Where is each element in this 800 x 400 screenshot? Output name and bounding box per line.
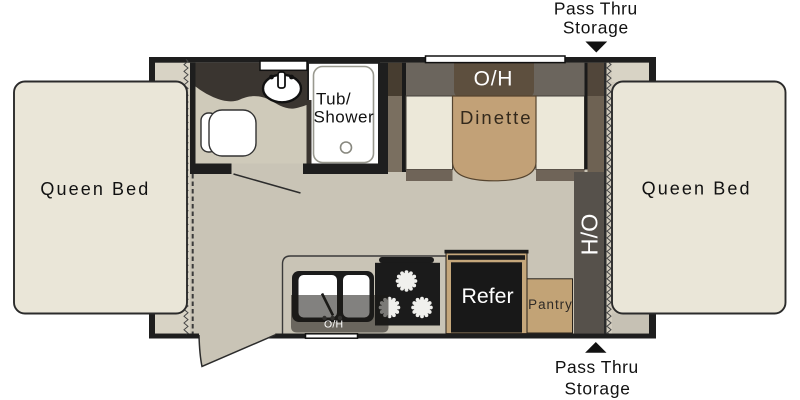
svg-text:O/H: O/H — [324, 319, 343, 331]
svg-text:Dinette: Dinette — [460, 107, 533, 128]
svg-text:Storage: Storage — [565, 379, 631, 399]
svg-text:O/H: O/H — [474, 68, 513, 91]
svg-text:Queen Bed: Queen Bed — [40, 179, 150, 199]
svg-text:Pass Thru: Pass Thru — [554, 0, 638, 19]
svg-text:Pantry: Pantry — [528, 297, 573, 312]
svg-text:Shower: Shower — [314, 108, 375, 127]
svg-text:Tub/: Tub/ — [316, 90, 351, 109]
svg-text:H/O: H/O — [577, 214, 603, 256]
svg-text:Pass Thru: Pass Thru — [555, 357, 639, 377]
svg-text:Refer: Refer — [461, 284, 513, 308]
svg-text:Storage: Storage — [563, 18, 629, 38]
svg-text:Queen Bed: Queen Bed — [642, 179, 752, 199]
